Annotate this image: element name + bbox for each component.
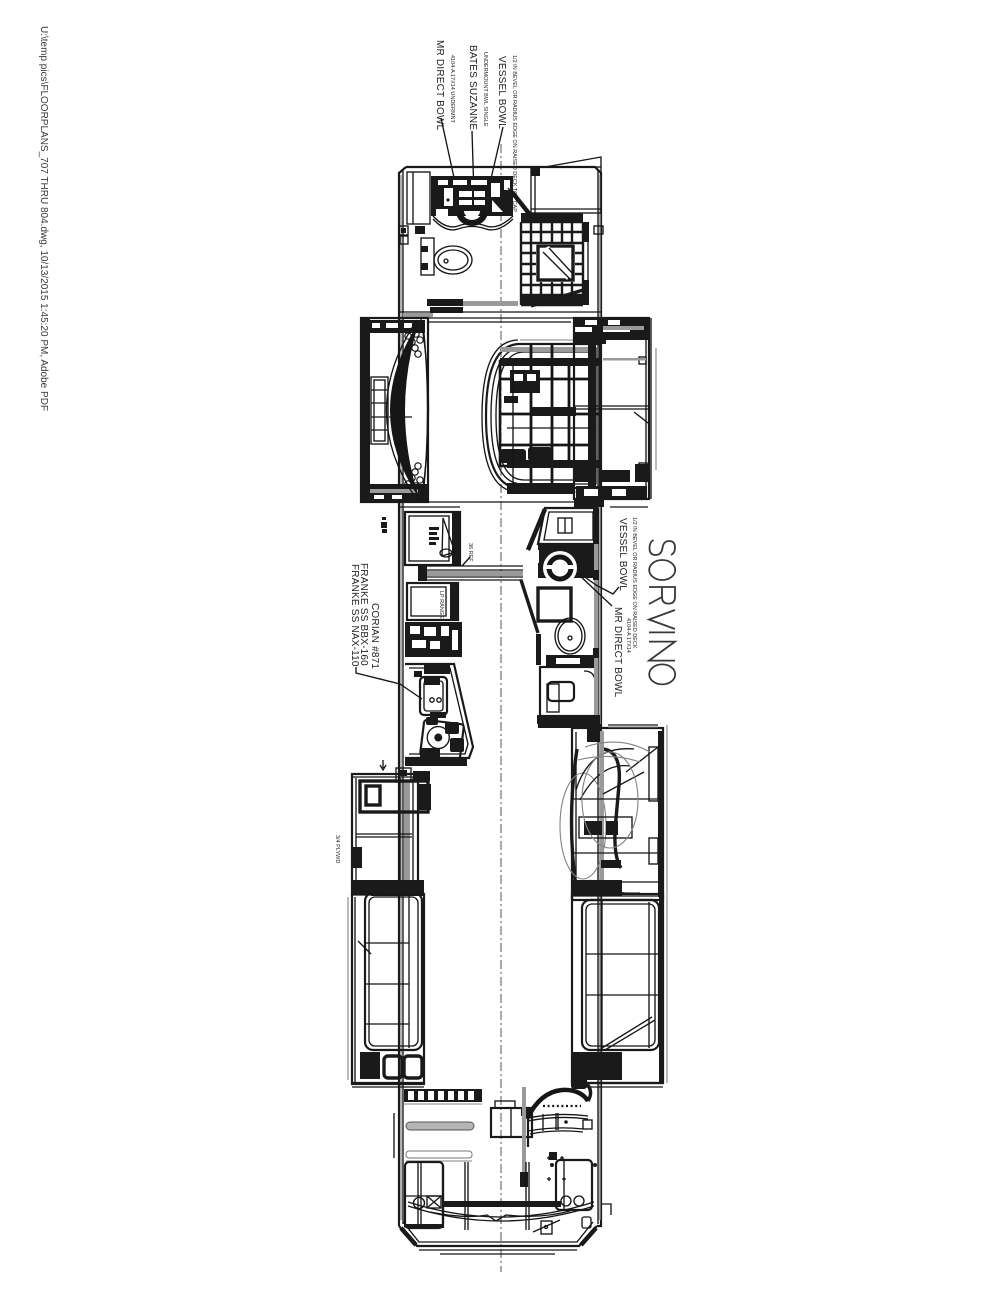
svg-text:FRANKE SS BBX-160: FRANKE SS BBX-160	[358, 563, 369, 666]
svg-text:LP RANGE: LP RANGE	[438, 591, 444, 619]
svg-text:4104-A 17X14: 4104-A 17X14	[625, 618, 631, 653]
svg-text:CORIAN #871: CORIAN #871	[369, 603, 380, 669]
svg-text:VESSEL BOWL: VESSEL BOWL	[617, 518, 628, 591]
svg-text:MR DIRECT BOWL: MR DIRECT BOWL	[434, 40, 445, 131]
svg-text:VESSEL BOWL: VESSEL BOWL	[496, 56, 507, 129]
svg-text:BATES SUZANNE: BATES SUZANNE	[467, 45, 478, 130]
svg-text:3/4 PLYWD: 3/4 PLYWD	[334, 835, 340, 863]
svg-text:UNDERMOUNT BWL SINGLE: UNDERMOUNT BWL SINGLE	[482, 52, 488, 127]
svg-text:MR DIRECT BOWL: MR DIRECT BOWL	[612, 607, 623, 698]
svg-text:4104-A 17X14 UNDERMNT: 4104-A 17X14 UNDERMNT	[449, 55, 455, 124]
svg-text:U:\temp pics\FLOORPLANS_707 TH: U:\temp pics\FLOORPLANS_707 THRU 804.dwg…	[38, 26, 49, 411]
